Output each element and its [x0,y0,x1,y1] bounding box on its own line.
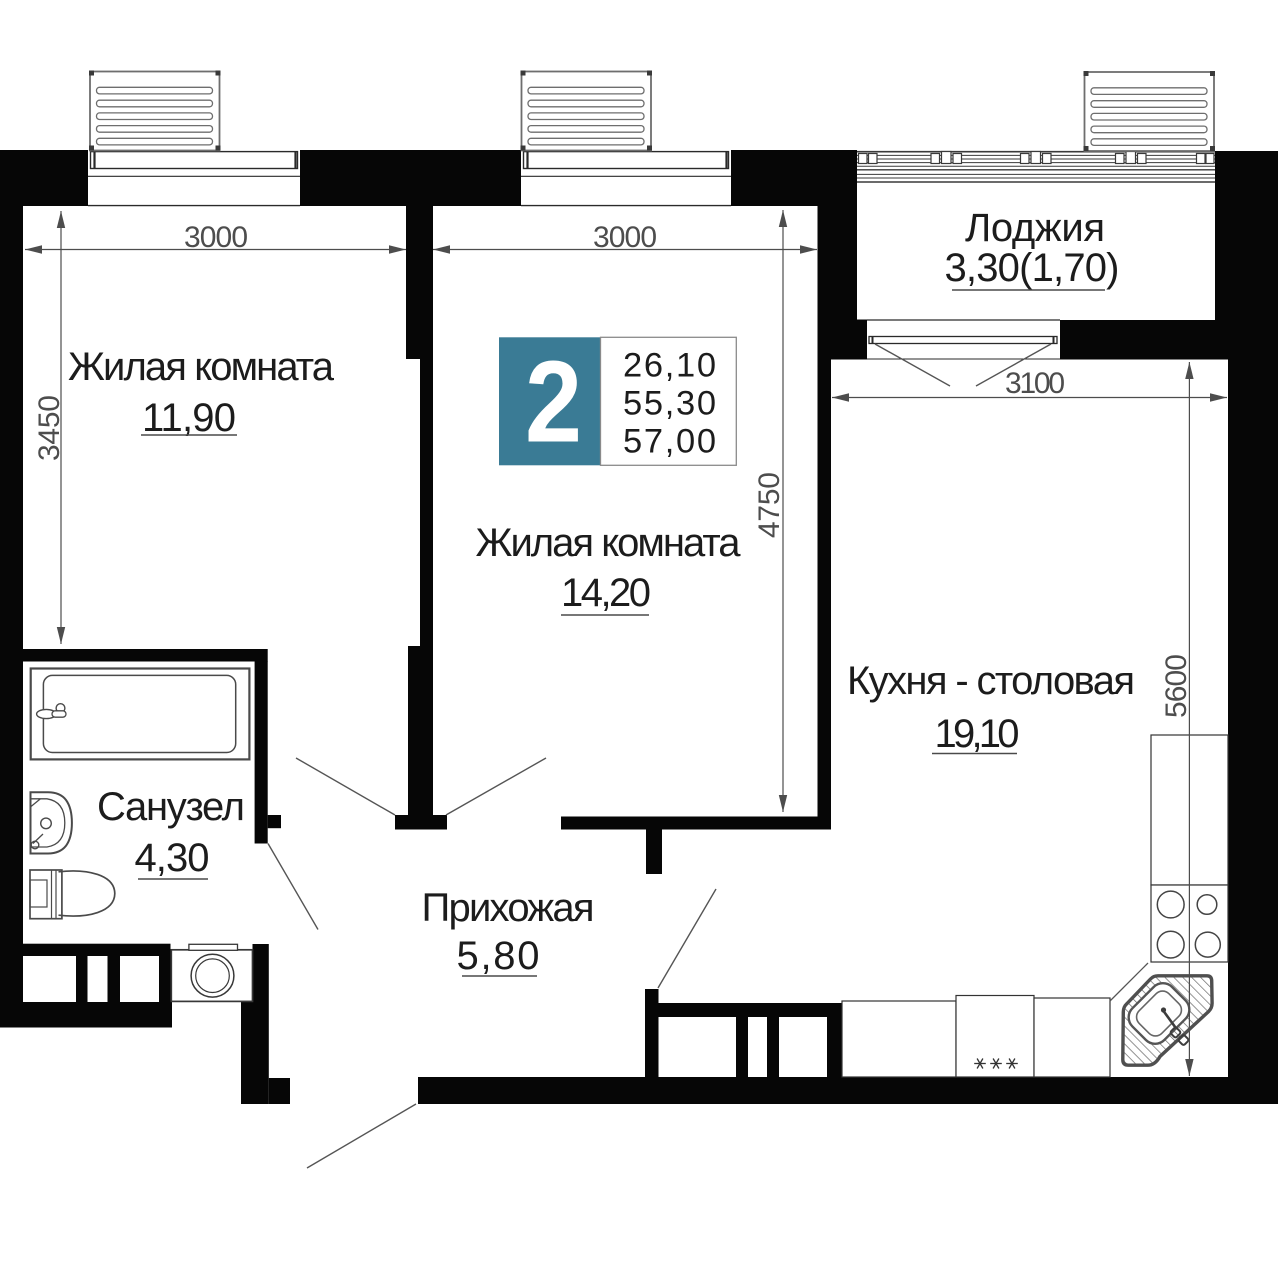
svg-text:Прихожая: Прихожая [422,886,595,930]
svg-text:55,30: 55,30 [623,385,716,423]
svg-text:19,10: 19,10 [935,712,1020,756]
svg-text:3000: 3000 [593,221,657,254]
svg-text:2: 2 [525,337,582,467]
svg-text:Санузел: Санузел [97,785,245,829]
svg-text:3450: 3450 [33,395,66,461]
svg-text:11,90: 11,90 [142,396,236,440]
svg-text:Кухня - столовая: Кухня - столовая [847,659,1135,703]
svg-text:14,20: 14,20 [561,571,651,615]
svg-text:3100: 3100 [1005,367,1065,400]
svg-text:5600: 5600 [1160,654,1193,718]
svg-text:Жилая комната: Жилая комната [68,345,335,389]
svg-text:3000: 3000 [184,221,248,254]
svg-text:4750: 4750 [753,472,786,538]
svg-text:Лоджия: Лоджия [965,206,1105,250]
svg-text:Жилая комната: Жилая комната [476,521,742,565]
svg-text:57,00: 57,00 [623,423,716,461]
svg-text:26,10: 26,10 [623,347,716,385]
svg-text:3,30(1,70): 3,30(1,70) [945,246,1120,290]
svg-text:5,80: 5,80 [457,934,540,978]
svg-text:4,30: 4,30 [135,836,210,880]
